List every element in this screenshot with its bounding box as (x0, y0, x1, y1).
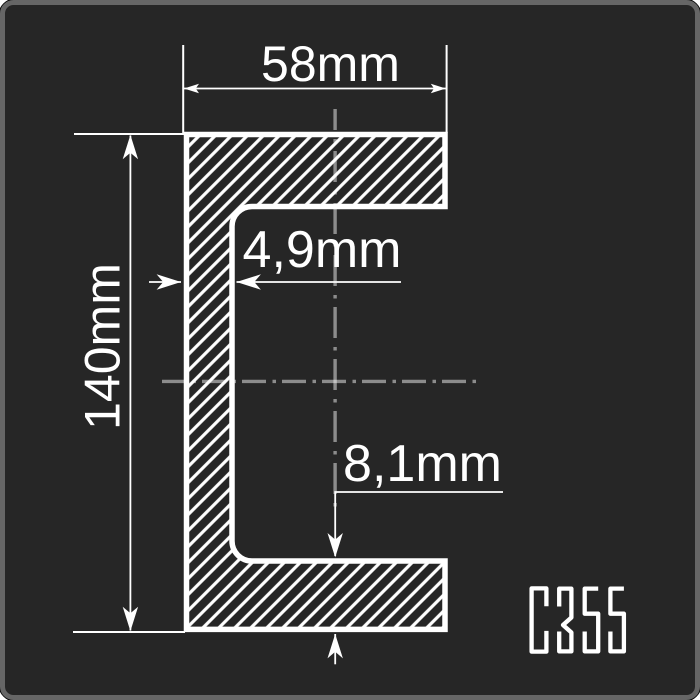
svg-text:4,9mm: 4,9mm (243, 221, 402, 279)
svg-text:58mm: 58mm (261, 36, 400, 92)
svg-text:140mm: 140mm (75, 263, 131, 430)
svg-text:8,1mm: 8,1mm (343, 435, 502, 493)
